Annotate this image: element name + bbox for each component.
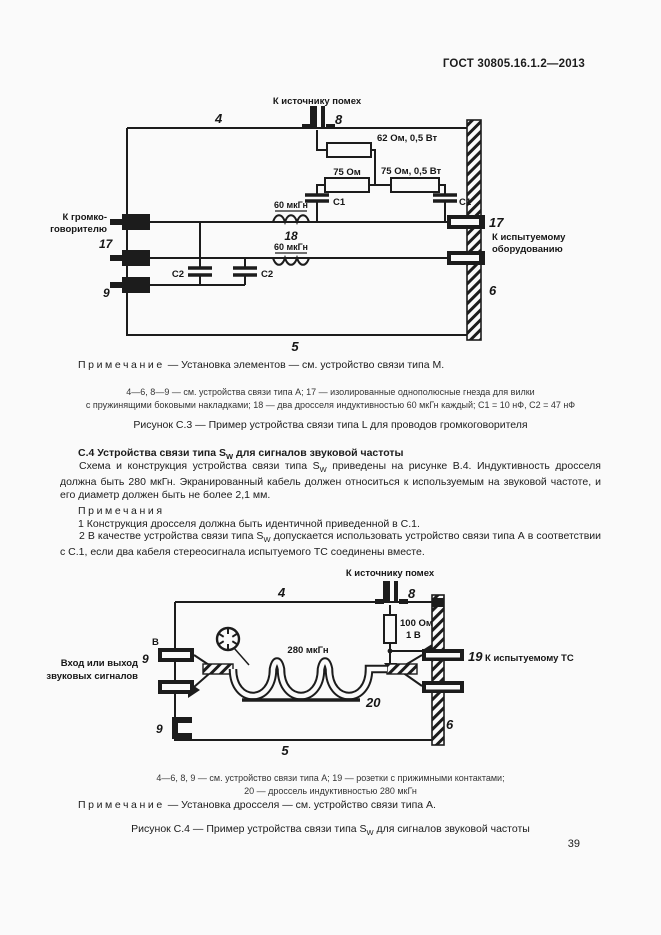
screw-icon — [217, 628, 249, 665]
resistor-100ohm-box — [384, 615, 396, 643]
capacitor-plates — [188, 195, 457, 275]
label-9-top: 9 — [142, 652, 149, 666]
label-to-noise-source: К источнику помех — [273, 96, 362, 107]
label-c2-left: С2 — [172, 269, 184, 280]
label-8: 8 — [408, 586, 416, 601]
inductor-coil-bottom — [273, 258, 309, 265]
note-text: — Установка дросселя — см. устройство св… — [168, 799, 436, 811]
figure-c4-caption: Рисунок С.4 — Пример устройства связи ти… — [30, 823, 631, 837]
label-9-bottom: 9 — [156, 722, 163, 736]
label-c1-left: С1 — [333, 197, 346, 208]
label-4: 4 — [214, 111, 223, 126]
note-2: 2 В качестве устройства связи типа SW до… — [60, 530, 601, 559]
coax-connector-8-icon — [302, 106, 335, 129]
legend-line-1: 4—6, 8—9 — см. устройства связи типа А; … — [40, 386, 621, 399]
notes-header: Примечания — [78, 505, 601, 517]
label-to-speaker-2: говорителю — [50, 224, 107, 235]
section-c4-heading: С.4 Устройства связи типа SW для сигнало… — [78, 447, 404, 461]
figure-c3-note: Примечание — Установка элементов — см. у… — [78, 359, 601, 371]
document-header: ГОСТ 30805.16.1.2—2013 — [0, 58, 585, 70]
speaker-plug-icons — [110, 214, 150, 293]
note-1: 1 Конструкция дросселя должна быть идент… — [78, 518, 601, 530]
screen-wall — [467, 120, 481, 340]
label-19: 19 — [468, 649, 483, 664]
label-9: 9 — [103, 286, 110, 300]
label-audio-input-1: Вход или выход — [61, 658, 138, 669]
coax-connector-8-icon — [375, 581, 408, 604]
label-to-eut-2: оборудованию — [492, 244, 563, 255]
label-resistor-75ohm-05w: 75 Ом, 0,5 Вт — [381, 166, 441, 177]
figure-c3-legend: 4—6, 8—9 — см. устройства связи типа А; … — [40, 386, 621, 411]
label-5: 5 — [281, 743, 289, 758]
label-17-right: 17 — [489, 215, 504, 230]
legend-line-2: 20 — дроссель индуктивностью 280 мкГн — [40, 785, 621, 798]
label-audio-input-2: звуковых сигналов — [46, 671, 138, 682]
label-20: 20 — [365, 695, 381, 710]
para-pre: Схема и конструкция устройства связи тип… — [79, 460, 320, 472]
label-18: 18 — [284, 229, 298, 243]
page-number: 39 — [568, 838, 580, 850]
label-6: 6 — [446, 717, 454, 732]
legend-line-1: 4—6, 8, 9 — см. устройство связи типа А;… — [40, 772, 621, 785]
figure-c4-diagram: К источнику помех 8 4 100 Ом 1 В 19 К ис… — [60, 565, 600, 760]
label-8: 8 — [335, 112, 343, 127]
label-to-noise-source: К источнику помех — [346, 568, 435, 579]
document-page: ГОСТ 30805.16.1.2—2013 — [0, 0, 661, 935]
note-text: — Установка элементов — см. устройство с… — [168, 359, 444, 371]
junction-dot — [388, 649, 393, 654]
label-to-eut-1: К испытуемому — [492, 232, 566, 243]
note-word: Примечание — [78, 359, 165, 371]
ground-plug-icon — [172, 717, 192, 739]
coiled-cable-choke — [203, 662, 417, 701]
label-resistor-75ohm: 75 Ом — [333, 167, 361, 178]
heading-post: для сигналов звуковой частоты — [233, 447, 403, 459]
label-resistor-1v: 1 В — [406, 630, 421, 641]
para-sub: W — [320, 465, 327, 474]
screen-wall — [432, 595, 444, 745]
label-to-eut: К испытуемому ТС — [485, 653, 574, 664]
caption-sub: W — [367, 828, 374, 837]
inductor-coil-top — [273, 215, 309, 222]
label-5: 5 — [291, 339, 299, 354]
caption-post: для сигналов звуковой частоты — [374, 823, 530, 835]
note2-pre: 2 В качестве устройства связи типа S — [79, 530, 263, 542]
label-c2-right: С2 — [261, 269, 273, 280]
label-280uH: 280 мкГн — [287, 645, 328, 656]
figure-c3-diagram: К источнику помех 8 4 62 Ом, 0,5 Вт 75 О… — [55, 90, 600, 358]
note-word: Примечание — [78, 799, 165, 811]
label-6: 6 — [489, 283, 497, 298]
note2-sub: W — [263, 535, 270, 544]
label-17-left: 17 — [99, 237, 114, 251]
label-c1-right: С1 — [459, 197, 472, 208]
section-c4-paragraph: Схема и конструкция устройства связи тип… — [60, 460, 601, 502]
heading-pre: С.4 Устройства связи типа S — [78, 447, 226, 459]
label-resistor-62ohm: 62 Ом, 0,5 Вт — [377, 133, 437, 144]
label-resistor-100ohm: 100 Ом — [400, 618, 433, 629]
wall-cap — [432, 598, 444, 607]
figure-c4-legend: 4—6, 8, 9 — см. устройство связи типа А;… — [40, 772, 621, 797]
figure-c3-caption: Рисунок С.3 — Пример устройства связи ти… — [30, 419, 631, 431]
caption-pre: Рисунок С.4 — Пример устройства связи ти… — [131, 823, 366, 835]
label-b: В — [152, 637, 159, 648]
legend-line-2: с пружинящими боковыми накладками; 18 — … — [40, 399, 621, 412]
label-to-speaker-1: К громко- — [63, 212, 108, 223]
figure-c4-note: Примечание — Установка дросселя — см. ус… — [78, 799, 601, 811]
label-4: 4 — [277, 585, 286, 600]
label-60uH-bottom: 60 мкГн — [274, 242, 308, 252]
label-60uH-top: 60 мкГн — [274, 200, 308, 210]
